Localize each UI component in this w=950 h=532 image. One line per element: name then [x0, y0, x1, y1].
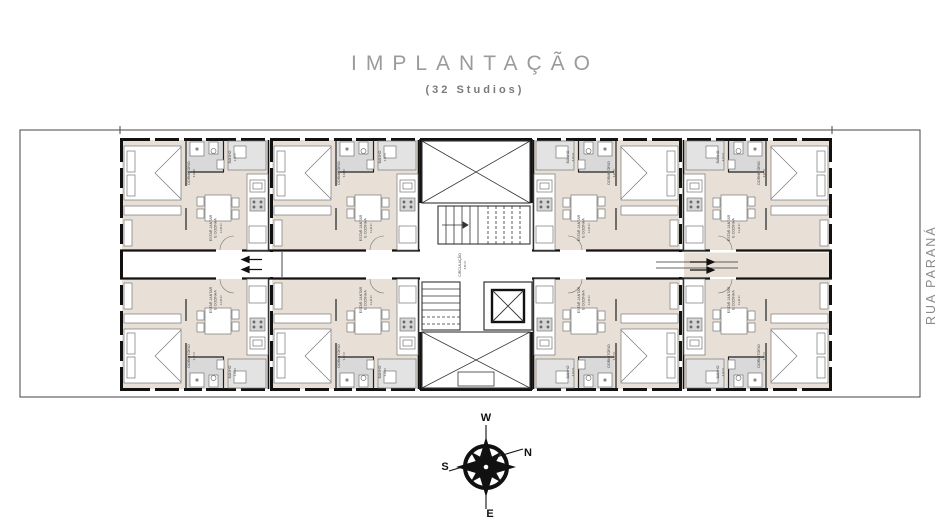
room-area-label: 11,45 m² [370, 223, 373, 233]
compass-north-label: N [524, 447, 532, 459]
room-label: E COZINHA [214, 290, 218, 310]
room-label: E COZINHA [364, 290, 368, 310]
room-label: ESTAR JANTAR [577, 286, 581, 313]
room-area-label: 11,45 m² [588, 295, 591, 305]
room-area-label: 4,18 m² [234, 153, 237, 162]
floor-plan-canvas: DORMITÓRIO9,02 m²BANHO4,18 m²ESTAR JANTA… [0, 0, 950, 532]
stairs-lower [422, 282, 460, 330]
room-label: ESTAR JANTAR [359, 214, 363, 241]
room-label: ESTAR JANTAR [577, 214, 581, 241]
entry-arrows [242, 257, 714, 274]
void-shaft-top [422, 141, 530, 203]
room-area-label: 4,18 m² [722, 153, 725, 162]
room-label: ESTAR JANTAR [209, 214, 213, 241]
compass-west-label: W [481, 412, 492, 424]
room-label: DORMITÓRIO [186, 344, 191, 368]
room-label: E COZINHA [732, 218, 736, 238]
room-area-label: 9,02 m² [763, 352, 766, 361]
room-area-label: 11,45 m² [738, 295, 741, 305]
room-area-label: 4,18 m² [384, 153, 387, 162]
studio-unit [120, 138, 270, 252]
room-label: DORMITÓRIO [606, 161, 611, 185]
studio-unit [120, 277, 270, 391]
room-area-label: 4,18 m² [572, 153, 575, 162]
room-area-label: 11,45 m² [370, 295, 373, 305]
room-area-label: 11,45 m² [220, 295, 223, 305]
room-area-label: 11,45 m² [588, 223, 591, 233]
room-area-label: 11,45 m² [220, 223, 223, 233]
room-area-label: 6,60 m² [464, 261, 467, 270]
room-label: BANHO [716, 365, 720, 378]
studio-unit [682, 277, 832, 391]
room-label: BANHO [228, 365, 232, 378]
room-area-label: 9,02 m² [613, 169, 616, 178]
stairs-upper [438, 206, 530, 244]
studio-unit [270, 138, 420, 252]
room-area-label: 4,18 m² [722, 368, 725, 377]
studio-unit [532, 277, 682, 391]
room-label: BANHO [566, 365, 570, 378]
room-area-label: 4,18 m² [384, 368, 387, 377]
room-label: BANHO [566, 150, 570, 163]
room-label: BANHO [378, 150, 382, 163]
room-label: BANHO [716, 150, 720, 163]
room-area-label: 9,02 m² [613, 352, 616, 361]
room-label: DORMITÓRIO [336, 344, 341, 368]
room-area-label: 9,02 m² [343, 352, 346, 361]
room-label: DORMITÓRIO [756, 161, 761, 185]
room-area-label: 11,45 m² [738, 223, 741, 233]
room-label: CIRCULAÇÃO [457, 253, 462, 277]
compass-east-label: E [486, 508, 493, 520]
elevator-shaft [484, 282, 532, 330]
compass-south-label: S [441, 461, 448, 473]
room-area-label: 4,18 m² [572, 368, 575, 377]
circulation-core [420, 139, 532, 390]
room-label: DORMITÓRIO [756, 344, 761, 368]
room-area-label: 9,02 m² [193, 352, 196, 361]
room-label: E COZINHA [582, 290, 586, 310]
room-label: ESTAR JANTAR [359, 286, 363, 313]
room-label: ESTAR JANTAR [209, 286, 213, 313]
room-label: ESTAR JANTAR [727, 286, 731, 313]
studio-unit [270, 277, 420, 391]
implantation-page: { "header": { "title": "IMPLANTAÇÃO", "s… [0, 0, 950, 532]
room-area-label: 9,02 m² [193, 169, 196, 178]
corridor [122, 252, 831, 277]
room-label: DORMITÓRIO [336, 161, 341, 185]
room-label: BANHO [378, 365, 382, 378]
room-label: ESTAR JANTAR [727, 214, 731, 241]
room-label: BANHO [228, 150, 232, 163]
room-label: E COZINHA [732, 290, 736, 310]
void-shaft-bottom [422, 332, 530, 388]
room-area-label: 9,02 m² [343, 169, 346, 178]
compass-rose: W N S E [441, 412, 532, 520]
room-label: E COZINHA [582, 218, 586, 238]
room-label: E COZINHA [214, 218, 218, 238]
room-label: DORMITÓRIO [186, 161, 191, 185]
studio-unit [682, 138, 832, 252]
room-label: DORMITÓRIO [606, 344, 611, 368]
room-area-label: 9,02 m² [763, 169, 766, 178]
room-area-label: 4,18 m² [234, 368, 237, 377]
room-label: E COZINHA [364, 218, 368, 238]
studio-unit [532, 138, 682, 252]
